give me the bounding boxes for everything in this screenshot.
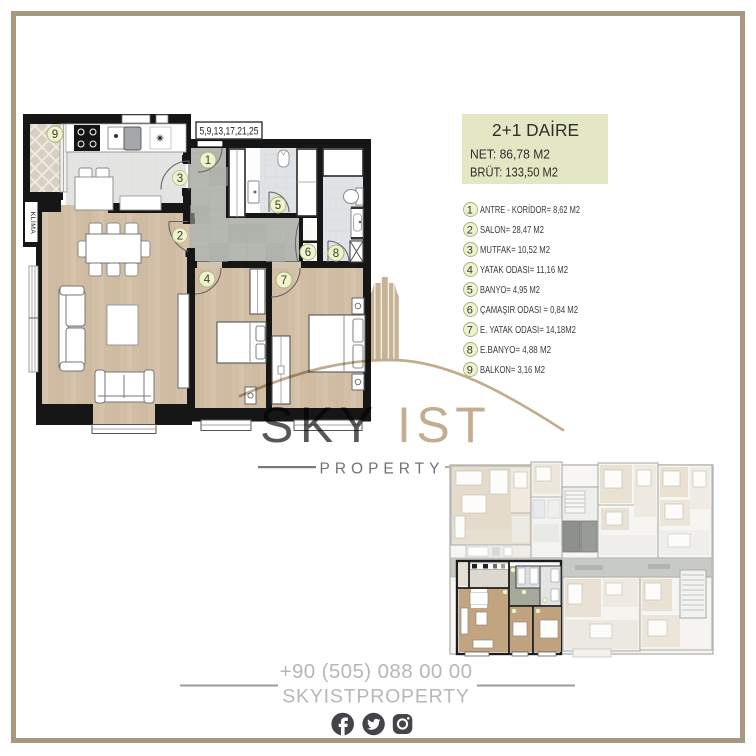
svg-text:SKYISTPROPERTY: SKYISTPROPERTY: [282, 686, 469, 708]
svg-text:+90 (505) 088 00 00: +90 (505) 088 00 00: [280, 660, 473, 683]
